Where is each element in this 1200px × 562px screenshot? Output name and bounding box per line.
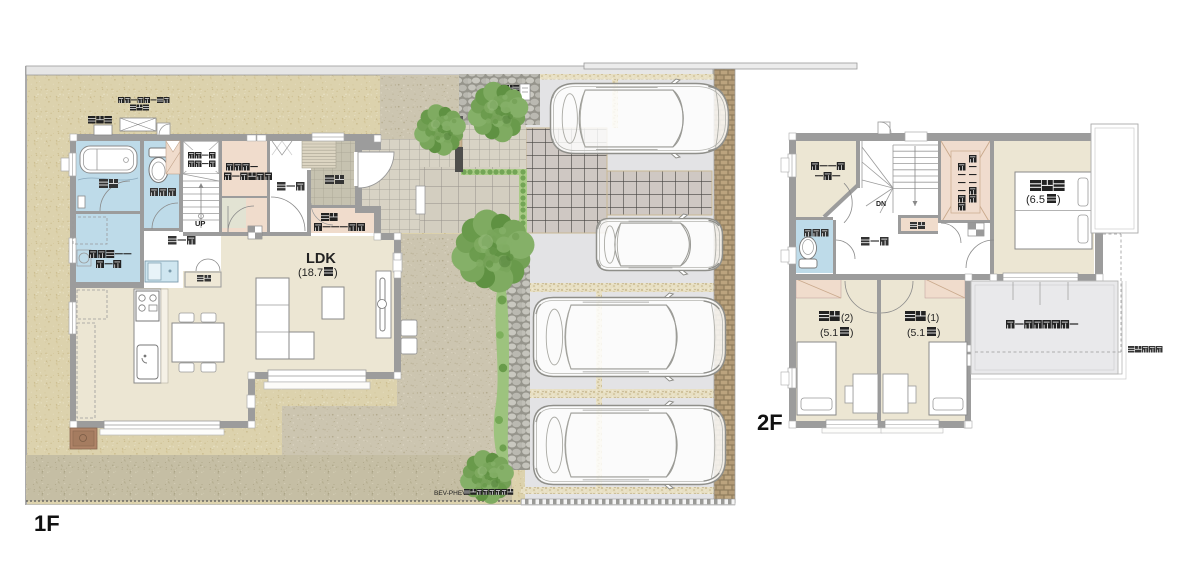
svg-text:(6.5: (6.5 xyxy=(1026,194,1045,206)
svg-text:): ) xyxy=(850,327,854,339)
svg-text:(5.1: (5.1 xyxy=(907,327,925,339)
svg-text:LDK: LDK xyxy=(306,251,336,267)
svg-text:2F: 2F xyxy=(757,410,783,435)
svg-text:(5.1: (5.1 xyxy=(820,327,838,339)
svg-text:(1): (1) xyxy=(927,313,939,324)
svg-text:DN: DN xyxy=(876,201,886,208)
svg-text:): ) xyxy=(1057,194,1061,206)
svg-text:1F: 1F xyxy=(34,511,60,536)
svg-text:(2): (2) xyxy=(841,313,853,324)
svg-text:BEV-PHEV: BEV-PHEV xyxy=(434,490,467,497)
svg-text:UP: UP xyxy=(195,219,205,228)
svg-text:): ) xyxy=(937,327,941,339)
svg-text:): ) xyxy=(334,267,338,279)
svg-text:(18.7: (18.7 xyxy=(298,267,323,279)
